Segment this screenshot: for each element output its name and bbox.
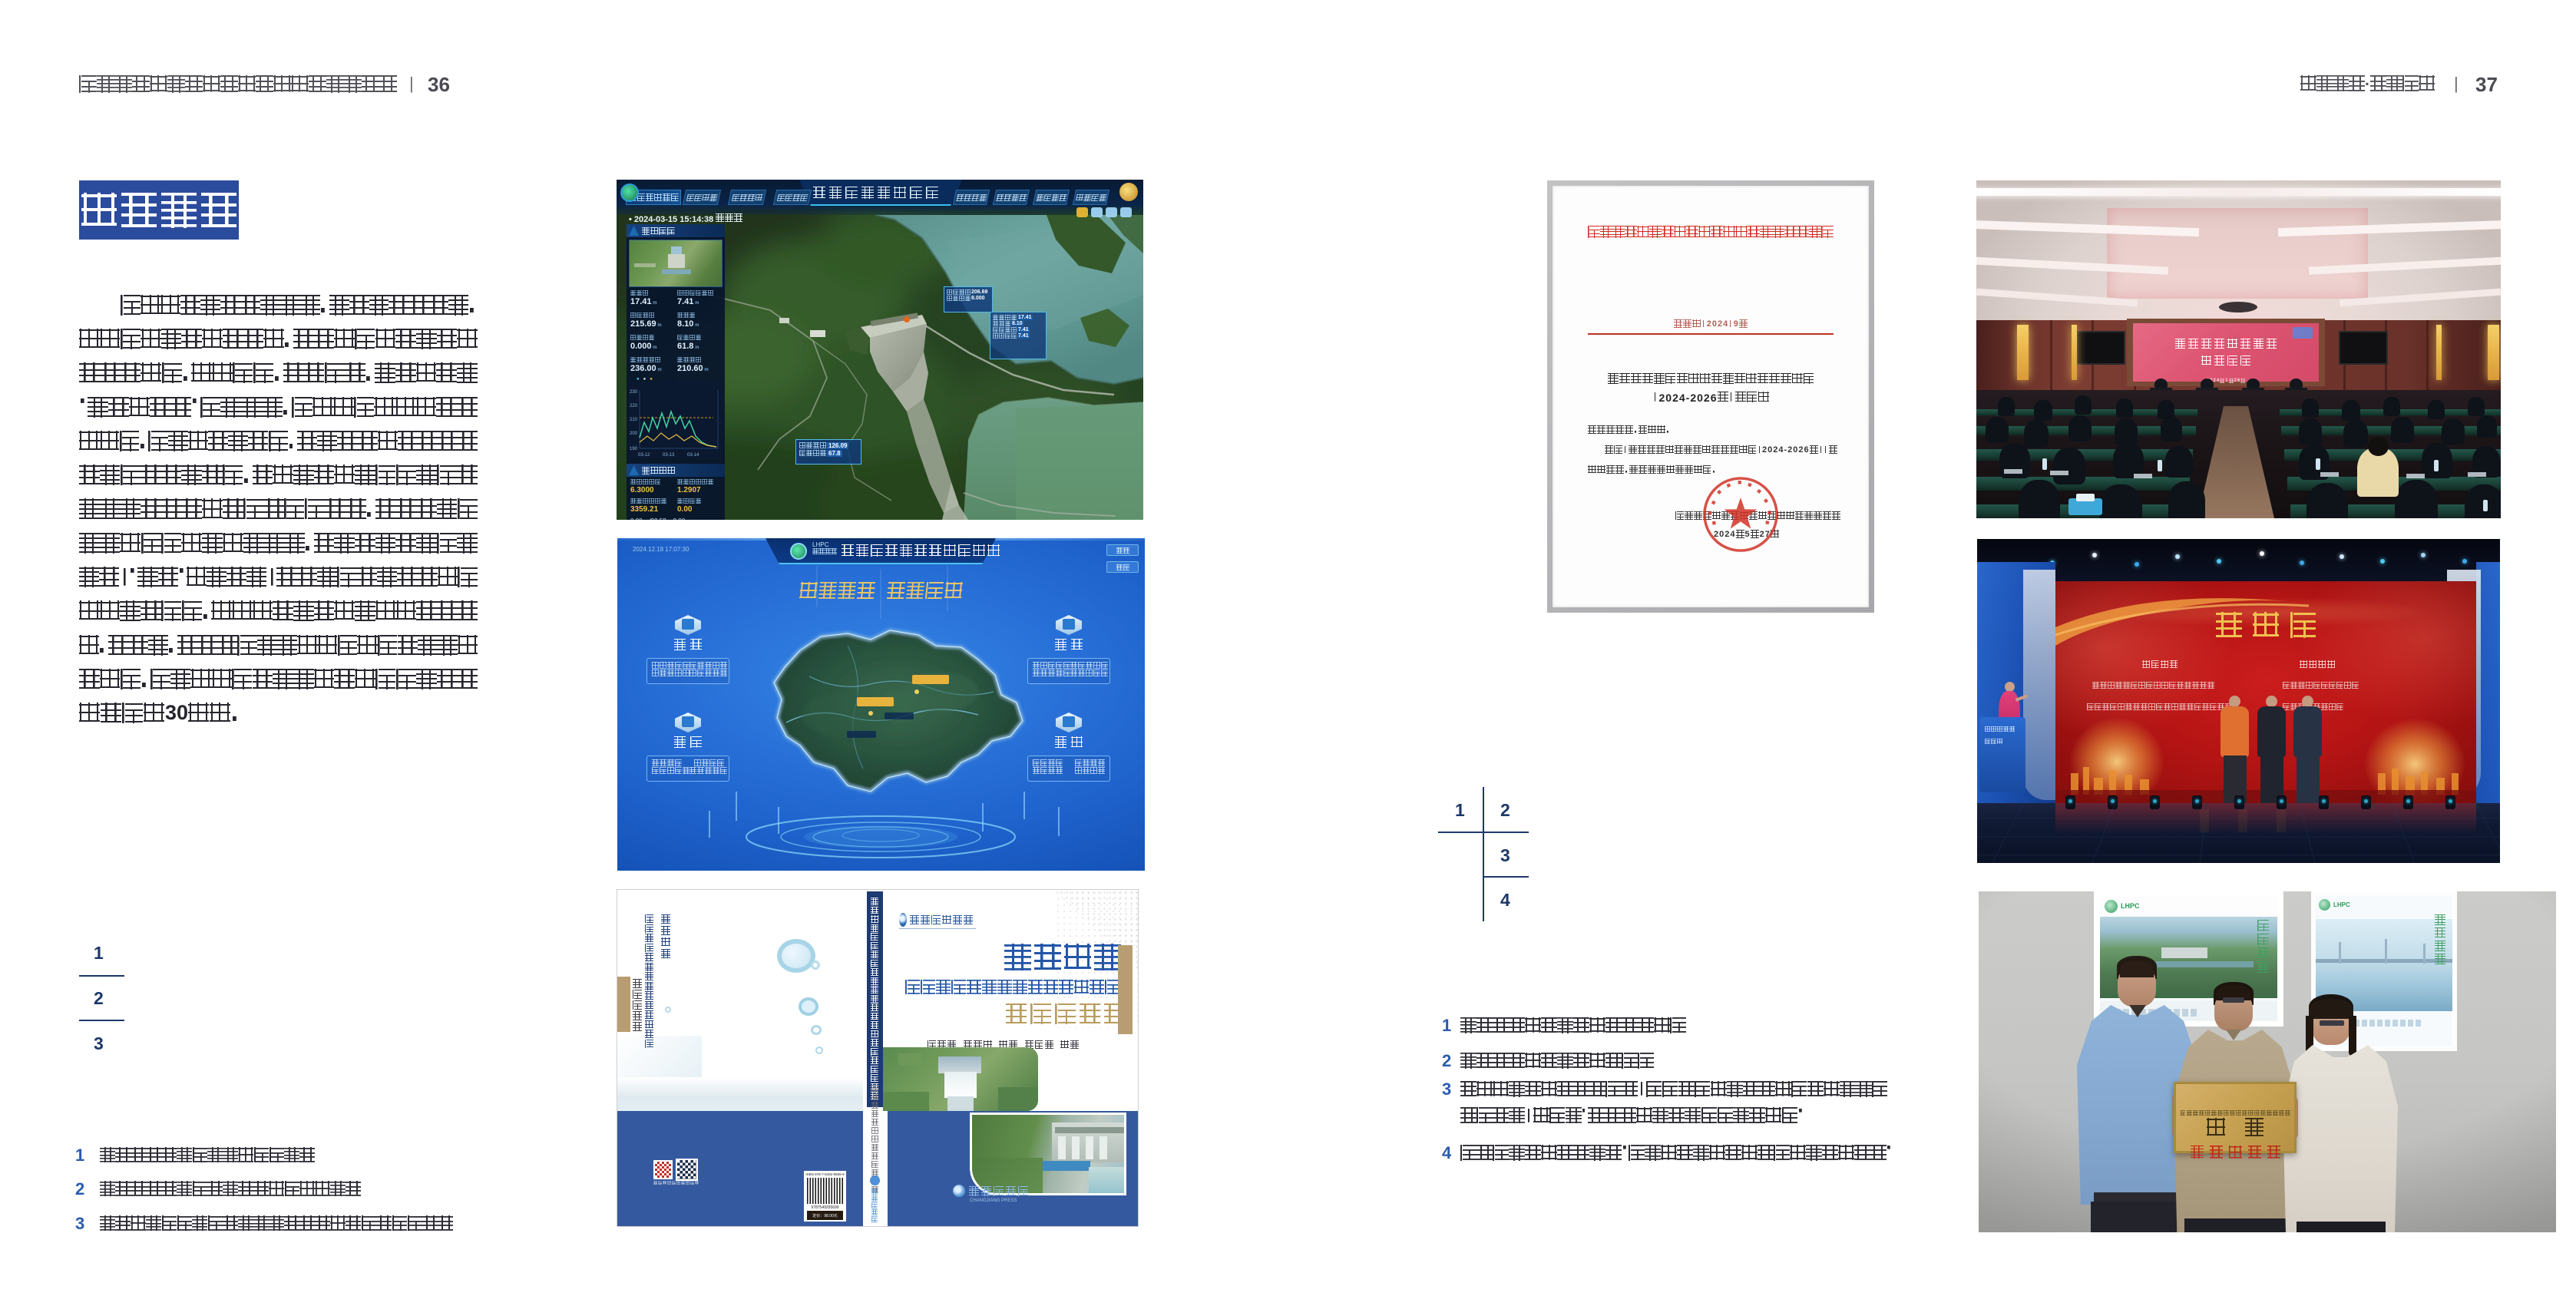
svg-text:■: ■ (1710, 521, 1718, 526)
svg-text:03-13: 03-13 (663, 453, 675, 458)
svg-text:■: ■ (1755, 487, 1763, 495)
svg-text:■: ■ (1709, 498, 1718, 506)
svg-text:03-14: 03-14 (687, 453, 699, 458)
svg-text:■: ■ (1764, 520, 1772, 525)
svg-text:200: 200 (630, 431, 638, 436)
svg-text:■: ■ (1705, 510, 1714, 516)
svg-text:03-12: 03-12 (638, 453, 650, 458)
svg-text:210: 210 (630, 418, 638, 422)
svg-text:230: 230 (630, 390, 638, 395)
svg-text:220: 220 (630, 404, 638, 408)
svg-text:■: ■ (1725, 481, 1732, 489)
svg-text:■: ■ (1715, 488, 1723, 496)
svg-text:■: ■ (1762, 497, 1771, 504)
svg-text:190: 190 (630, 447, 638, 451)
svg-text:■: ■ (1738, 478, 1741, 486)
svg-text:■: ■ (1765, 510, 1774, 516)
svg-text:■: ■ (1747, 481, 1753, 489)
